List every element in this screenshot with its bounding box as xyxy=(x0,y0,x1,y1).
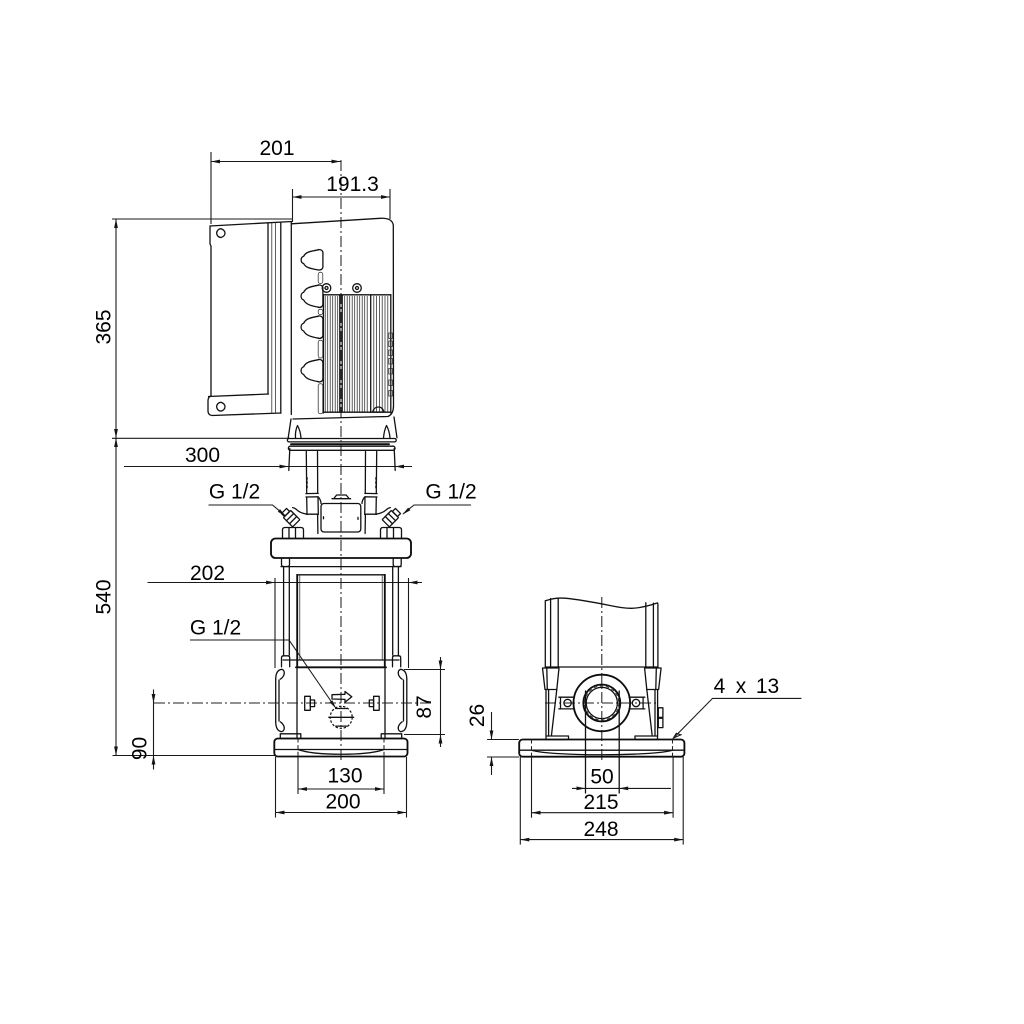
svg-text:90: 90 xyxy=(129,737,152,760)
svg-text:215: 215 xyxy=(583,791,618,814)
svg-text:4: 4 xyxy=(714,675,726,698)
svg-text:201: 201 xyxy=(259,137,294,160)
svg-text:365: 365 xyxy=(93,309,116,344)
svg-text:50: 50 xyxy=(590,766,613,789)
svg-text:G 1/2: G 1/2 xyxy=(209,481,260,504)
svg-text:G 1/2: G 1/2 xyxy=(425,481,476,504)
svg-text:87: 87 xyxy=(413,695,436,718)
svg-text:202: 202 xyxy=(190,562,225,585)
svg-text:540: 540 xyxy=(93,579,116,614)
svg-text:200: 200 xyxy=(325,791,360,814)
svg-text:G 1/2: G 1/2 xyxy=(190,617,241,640)
svg-text:13: 13 xyxy=(756,675,779,698)
svg-text:x: x xyxy=(736,675,747,698)
svg-text:300: 300 xyxy=(185,444,220,467)
svg-text:26: 26 xyxy=(466,704,489,727)
svg-text:248: 248 xyxy=(583,818,618,841)
svg-text:130: 130 xyxy=(327,765,362,788)
svg-text:191.3: 191.3 xyxy=(326,173,379,196)
